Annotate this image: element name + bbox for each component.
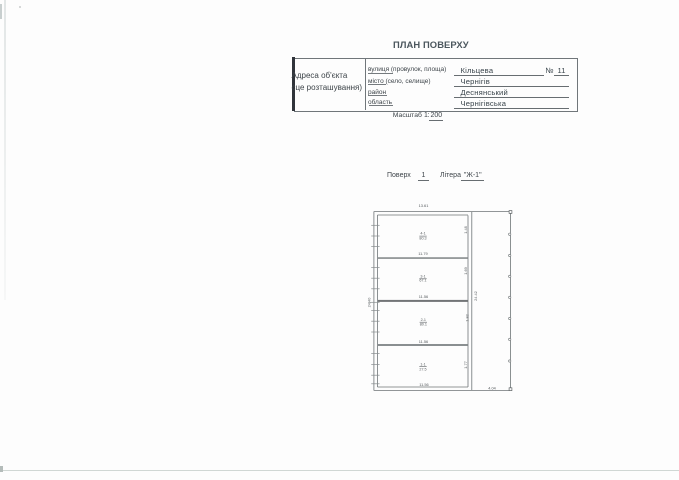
svg-text:80.3: 80.3 [419, 236, 426, 240]
svg-text:67.1: 67.1 [419, 279, 426, 283]
svg-text:11.56: 11.56 [419, 382, 428, 387]
svg-text:1.69: 1.69 [463, 267, 468, 275]
svg-text:24.42: 24.42 [473, 291, 478, 301]
svg-text:1.77: 1.77 [463, 361, 468, 369]
svg-text:11.56: 11.56 [419, 339, 428, 344]
svg-text:4-1: 4-1 [420, 232, 425, 236]
svg-text:13.61: 13.61 [419, 203, 429, 208]
svg-text:2-1: 2-1 [421, 318, 426, 322]
svg-text:24.40: 24.40 [366, 297, 371, 308]
svg-text:1.82: 1.82 [465, 314, 470, 322]
svg-text:11.56: 11.56 [419, 294, 428, 299]
svg-text:27.5: 27.5 [419, 367, 426, 371]
svg-text:1-1: 1-1 [420, 362, 425, 366]
svg-text:4.04: 4.04 [488, 387, 495, 391]
svg-text:1.48: 1.48 [463, 226, 468, 234]
svg-text:80.1: 80.1 [420, 323, 427, 327]
svg-text:11.79: 11.79 [418, 251, 427, 256]
